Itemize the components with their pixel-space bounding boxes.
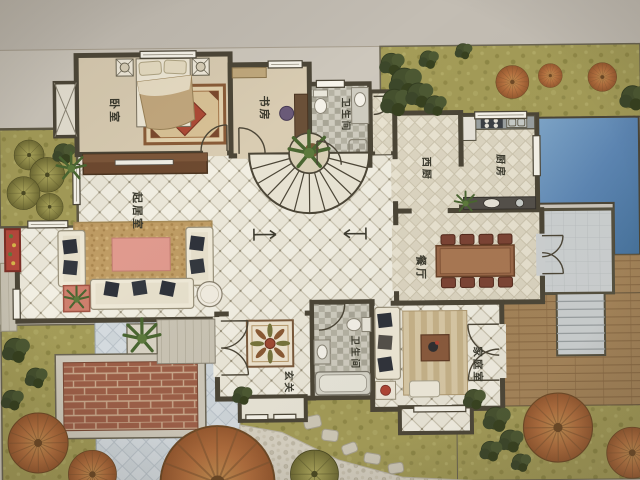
floor-plan: 卧室 书房 卫生间 西厨 厨房 起居室 餐厅 玄关 卫生间 家庭室 [0,0,640,480]
photo-vignette-overlay [0,0,640,480]
floor-plan-photo: 卧室 书房 卫生间 西厨 厨房 起居室 餐厅 玄关 卫生间 家庭室 [0,0,640,480]
